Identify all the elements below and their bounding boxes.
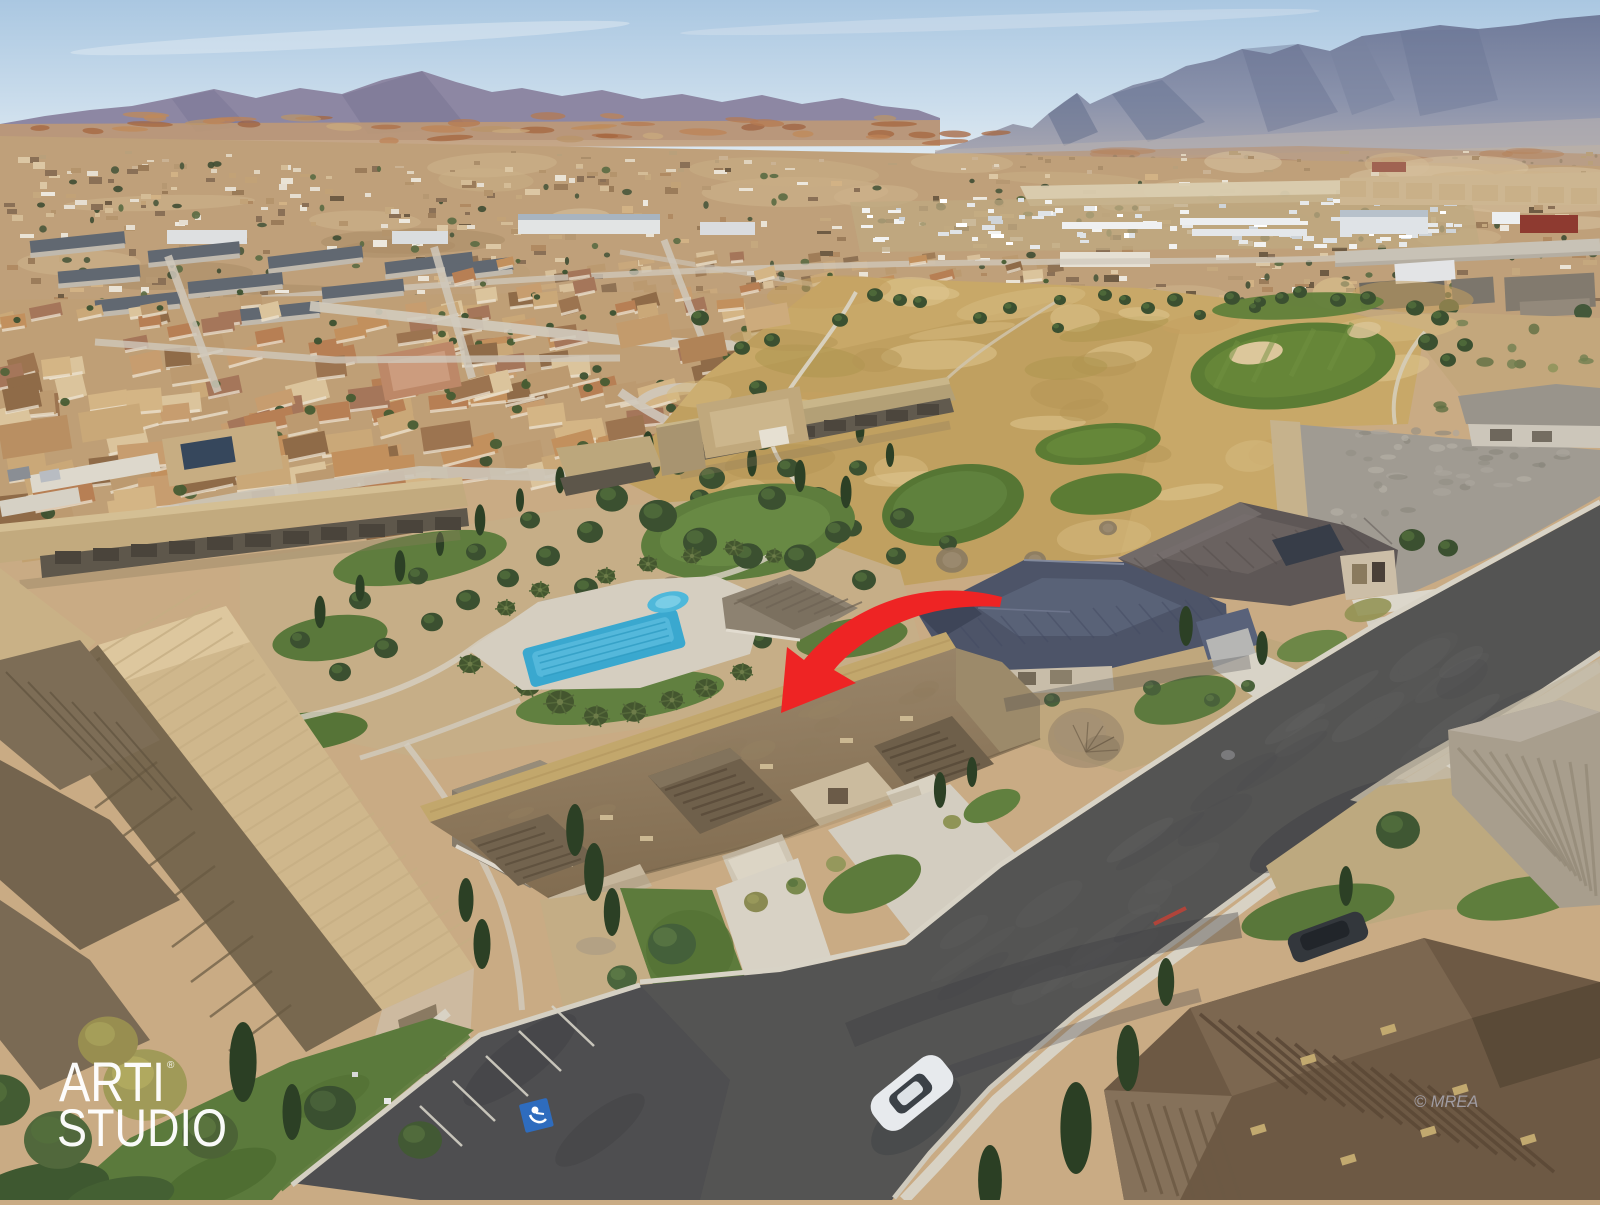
svg-text:®: ® — [167, 1060, 175, 1071]
svg-text:© MREA: © MREA — [1414, 1093, 1478, 1111]
svg-text:STUDIO: STUDIO — [57, 1099, 227, 1158]
